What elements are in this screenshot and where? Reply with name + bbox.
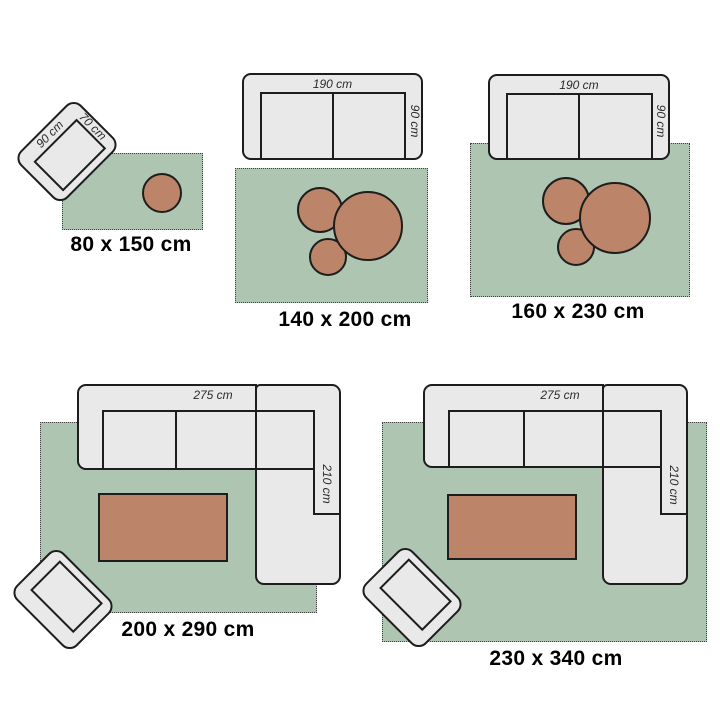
nesting-table-large (579, 182, 651, 254)
rug-size-guide-diagram: 90 cm 70 cm 80 x 150 cm 190 cm 90 cm 140… (0, 0, 720, 720)
sofa-width-label: 190 cm (490, 79, 668, 91)
round-side-table (142, 173, 182, 213)
chaise-backrest-line (313, 410, 315, 515)
sofa-depth-label: 90 cm (409, 105, 421, 138)
sofa-arm-line (102, 410, 104, 470)
corner-sofa: 275 cm 210 cm (423, 384, 688, 585)
sofa-width-label: 275 cm (85, 389, 341, 401)
chaise-backrest-end-line (660, 513, 688, 515)
two-seater-sofa: 190 cm 90 cm (242, 73, 423, 160)
sofa-backrest-line (448, 410, 662, 412)
size-label-140x200: 140 x 200 cm (278, 309, 411, 330)
chaise-backrest-line (660, 410, 662, 515)
chaise-backrest-end-line (313, 513, 341, 515)
size-label-200x290: 200 x 290 cm (121, 619, 254, 640)
sofa-arm-line (448, 410, 450, 468)
sofa-corner-line (602, 466, 662, 468)
nesting-table-large (333, 191, 403, 261)
sofa-cushion-divider (523, 410, 525, 468)
sofa-cushion-divider (578, 93, 580, 158)
size-label-160x230: 160 x 230 cm (511, 301, 644, 322)
size-label-80x150: 80 x 150 cm (70, 234, 191, 255)
sofa-cushion-divider (332, 92, 334, 158)
sofa-depth-label: 210 cm (668, 465, 680, 504)
sofa-depth-label: 90 cm (655, 105, 667, 138)
two-seater-sofa: 190 cm 90 cm (488, 74, 670, 160)
corner-sofa: 275 cm 210 cm (77, 384, 341, 585)
size-label-230x340: 230 x 340 cm (489, 648, 622, 669)
sofa-cushion-divider (175, 410, 177, 470)
sofa-width-label: 190 cm (244, 78, 421, 90)
sofa-corner-line (255, 468, 315, 470)
sofa-depth-label: 210 cm (321, 464, 333, 503)
sofa-width-label: 275 cm (432, 389, 688, 401)
sofa-backrest-line (102, 410, 315, 412)
